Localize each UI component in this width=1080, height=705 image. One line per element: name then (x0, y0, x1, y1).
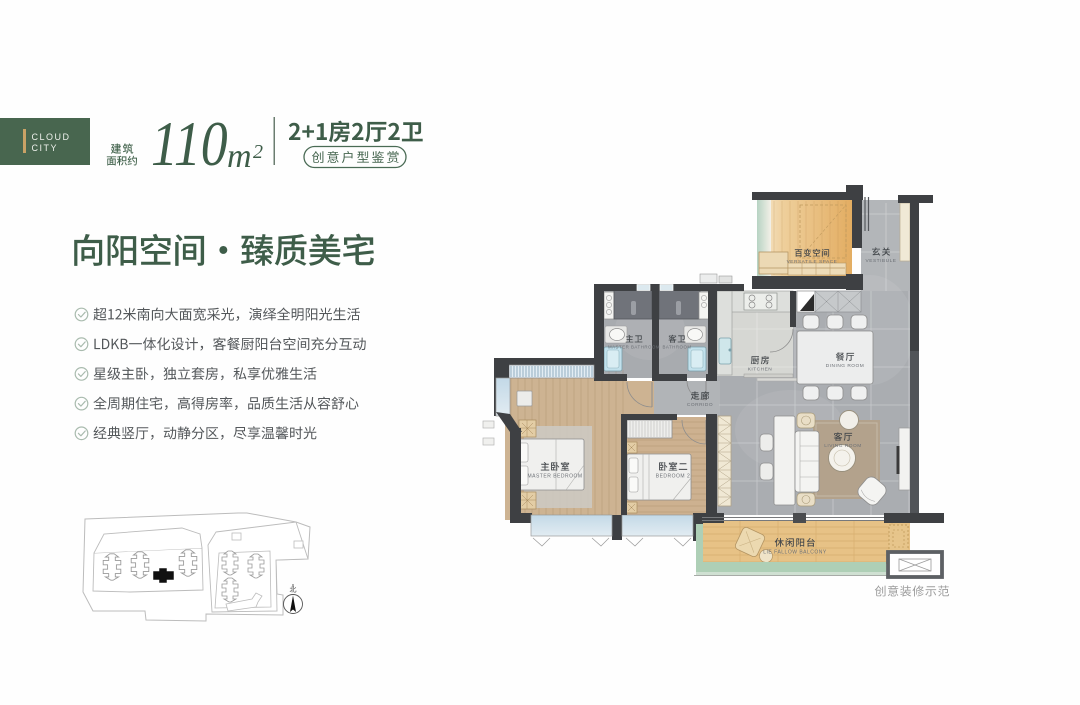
svg-text:LIE FALLOW BALCONY: LIE FALLOW BALCONY (763, 550, 827, 556)
svg-text:VESTIBULE: VESTIBULE (866, 258, 897, 264)
svg-text:MASTER BATHROOM: MASTER BATHROOM (608, 345, 660, 350)
svg-text:LIVING ROOM: LIVING ROOM (824, 443, 861, 449)
svg-text:VERSATILE SPACE: VERSATILE SPACE (787, 259, 838, 265)
svg-text:BATHROOM: BATHROOM (662, 345, 691, 350)
svg-text:CORRIDO: CORRIDO (687, 402, 713, 408)
svg-text:DINING ROOM: DINING ROOM (826, 363, 865, 369)
svg-text:BEDROOM 2: BEDROOM 2 (656, 474, 691, 480)
svg-text:MASTER BEDROOM: MASTER BEDROOM (527, 474, 582, 480)
svg-text:KITCHEN: KITCHEN (748, 367, 773, 373)
